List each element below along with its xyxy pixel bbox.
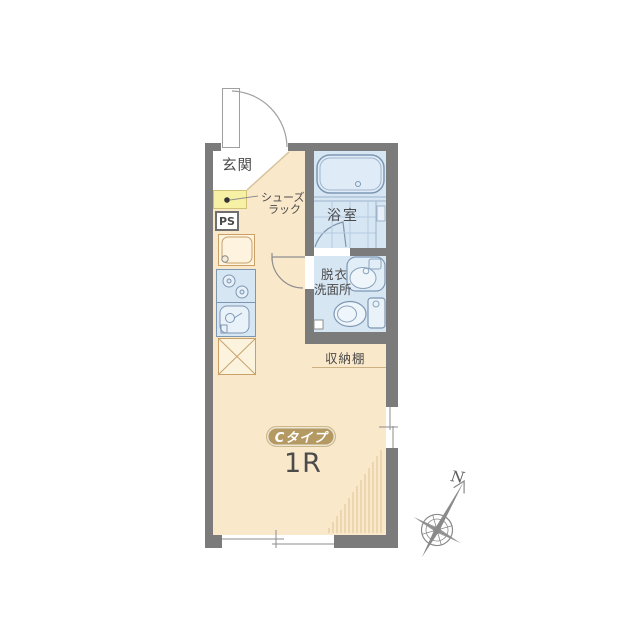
refrigerator-space [218, 338, 256, 375]
interior-wall-vertical [305, 151, 314, 332]
shoe-rack-label-line2: ラック [268, 201, 301, 217]
compass-rose-icon [398, 468, 487, 570]
bathroom-door-opening [314, 248, 350, 256]
unit-type-badge: Cタイプ [266, 426, 336, 447]
storage-shelf-label: 収納棚 [325, 348, 366, 367]
washroom-label-line2: 洗面所 [314, 279, 352, 298]
entrance-door-leaf [222, 88, 240, 148]
washing-machine-pan [218, 234, 255, 266]
layout-type-label: 1R [284, 448, 322, 479]
bathroom-floor [314, 151, 386, 248]
bathroom-label: 浴室 [327, 205, 359, 225]
pipe-space-box: PS [215, 211, 239, 231]
entrance-label: 玄関 [222, 154, 253, 175]
window-bottom [222, 535, 334, 548]
bath-washroom-wall [350, 248, 386, 256]
floorplan-canvas: PS [0, 0, 640, 640]
shoe-rack [213, 190, 247, 209]
storage-shelf-edge [312, 367, 386, 368]
kitchen-stove [216, 269, 256, 303]
entrance-door-arc [232, 91, 287, 147]
interior-wall-horizontal [305, 332, 386, 344]
compass-north-label: N [450, 467, 466, 487]
washroom-door-opening [305, 256, 314, 289]
window-right [386, 407, 398, 448]
kitchen-sink [216, 302, 256, 337]
pipe-space-label: PS [219, 215, 235, 228]
unit-type-badge-label: Cタイプ [275, 427, 328, 446]
